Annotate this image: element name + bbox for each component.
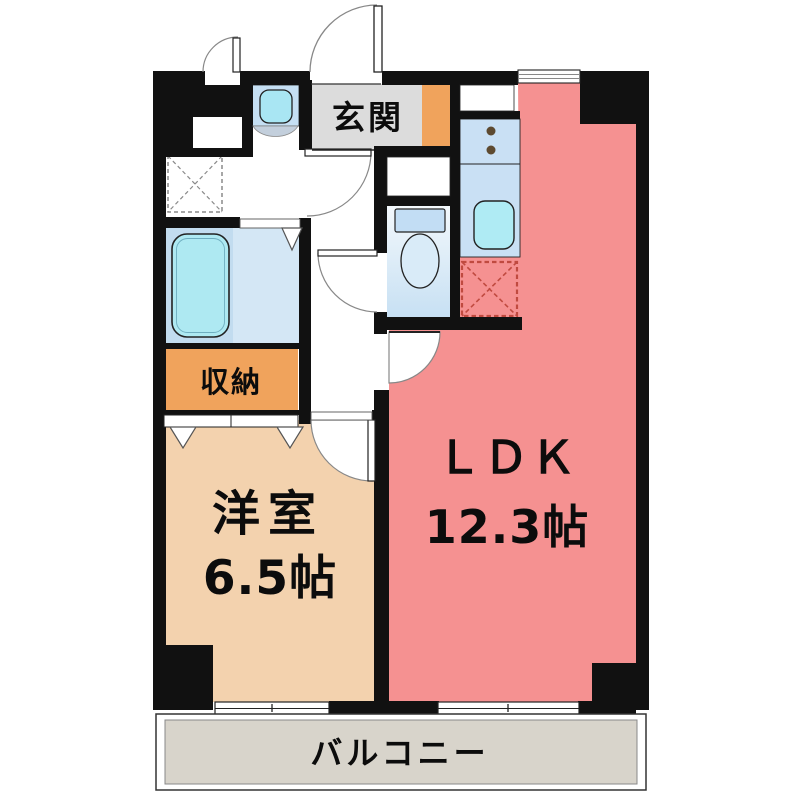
shoe-cabinet <box>422 82 450 150</box>
stove-burner <box>487 127 496 136</box>
kitchen-sink <box>474 201 514 249</box>
balcony-label: バルコニー <box>310 734 489 772</box>
kitchen-alcove <box>460 85 514 111</box>
storage-label: 収納 <box>200 365 262 399</box>
meter-box <box>193 117 242 148</box>
ldk-label: ＬＤＫ <box>436 431 577 484</box>
kitchen-window <box>518 70 580 83</box>
balcony-window-east <box>438 702 579 715</box>
toilet-alcove <box>387 157 450 196</box>
entrance-label: 玄関 <box>332 98 404 137</box>
floorplan-image: 玄関 収納 洋室 6.5帖 ＬＤＫ 12.3帖 バルコニー <box>0 0 799 800</box>
western-room-size: 6.5帖 <box>203 551 337 606</box>
stove-burner <box>487 146 496 155</box>
ldk-size: 12.3帖 <box>425 500 590 554</box>
balcony-window-west <box>215 702 329 715</box>
ldk-fridge-nook-floor <box>460 257 520 317</box>
western-room-label: 洋室 <box>212 486 324 542</box>
washbasin <box>253 90 298 137</box>
bathtub <box>172 234 229 337</box>
